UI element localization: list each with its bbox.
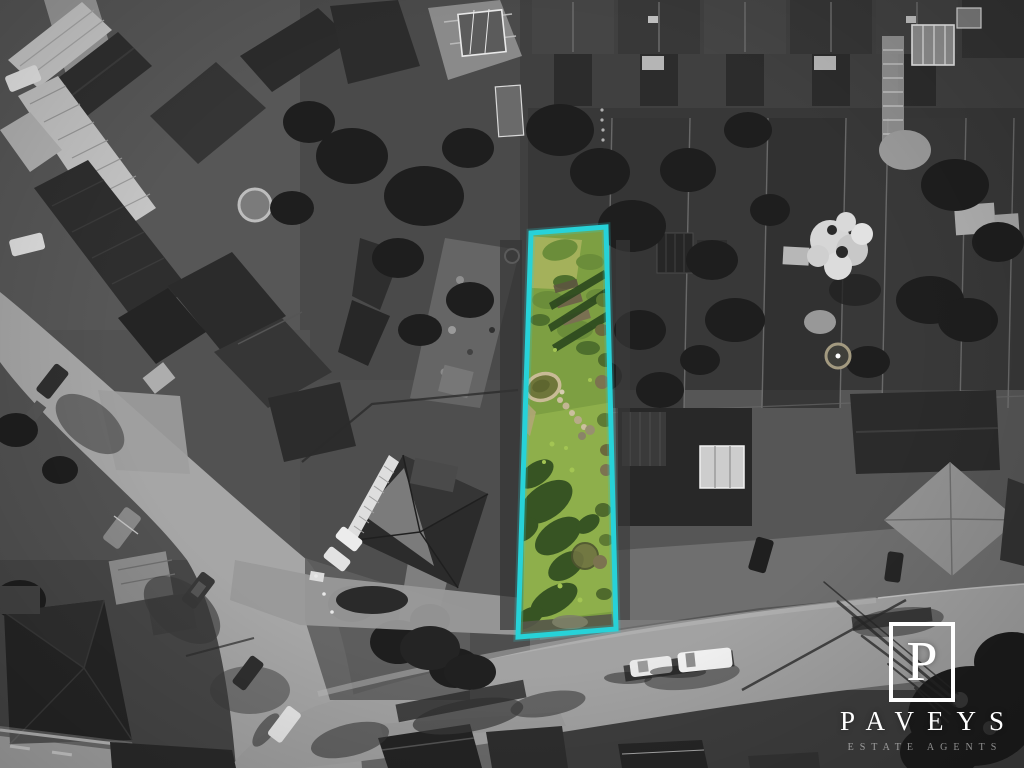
aerial-photo: P PAVEYS ESTATE AGENTS	[0, 0, 1024, 768]
paveys-monogram-box: P	[889, 622, 955, 702]
round-garden-feature	[239, 189, 271, 221]
paveys-monogram: P	[906, 634, 937, 690]
paveys-logo: P PAVEYS ESTATE AGENTS	[820, 622, 1024, 753]
paveys-name: PAVEYS	[820, 706, 1024, 737]
paveys-tagline: ESTATE AGENTS	[820, 742, 1024, 753]
skylight	[700, 446, 744, 488]
